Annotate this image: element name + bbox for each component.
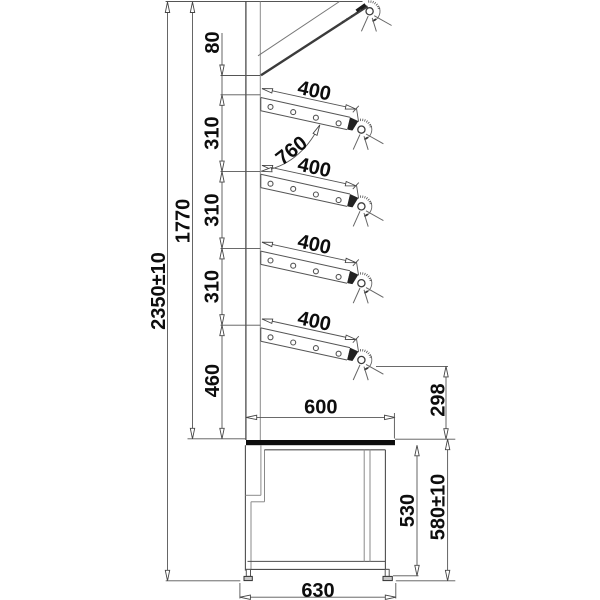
svg-text:80: 80	[202, 31, 224, 53]
svg-text:2350±10: 2350±10	[148, 252, 170, 330]
svg-text:310: 310	[202, 116, 224, 149]
svg-text:580±10: 580±10	[427, 474, 449, 541]
svg-text:1770: 1770	[173, 199, 195, 244]
svg-text:310: 310	[202, 193, 224, 226]
svg-text:630: 630	[301, 580, 334, 600]
svg-text:460: 460	[202, 364, 224, 397]
svg-text:298: 298	[428, 383, 450, 416]
svg-text:530: 530	[397, 494, 419, 527]
svg-text:310: 310	[202, 270, 224, 303]
svg-text:600: 600	[304, 397, 337, 419]
